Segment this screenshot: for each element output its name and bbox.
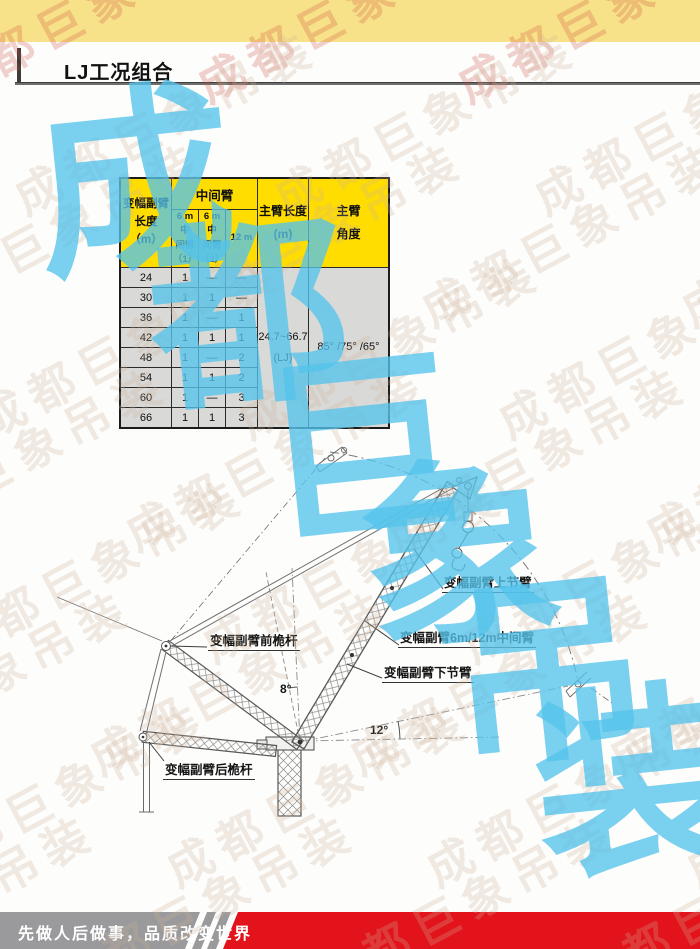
table-cell: 1 [172, 328, 199, 348]
table-body: 241——24.7~66.7 (LJ)85° /75° /65°3011—361… [120, 268, 389, 429]
label-mid-jib: 变幅副臂6m/12m中间臂 [398, 627, 536, 648]
label-rear-mast: 变幅副臂后桅杆 [163, 759, 255, 780]
watermark-tile: 成都巨象吊装 [153, 684, 481, 900]
table-cell: — [199, 308, 226, 328]
watermark-tile: 成都巨象吊装 [0, 684, 221, 900]
counterweight-ropes [139, 733, 154, 812]
table-row: 241——24.7~66.7 (LJ)85° /75° /65° [120, 268, 389, 288]
table-cell: 30 [120, 288, 172, 308]
tower-mast [257, 737, 314, 816]
label-angle-8: 8° [280, 682, 291, 696]
jib-joint-1 [350, 653, 354, 657]
table-cell: 1 [172, 268, 199, 288]
watermark-tile: 成都巨象吊装 [485, 236, 700, 452]
watermark-tile: 成都巨象吊装 [413, 684, 700, 900]
table-cell: 1 [172, 388, 199, 408]
front-mast-head [162, 642, 171, 651]
watermark-tile: 成都巨象吊装 [408, 124, 700, 340]
table-cell: 2 [226, 368, 258, 388]
table-cell: 24 [120, 268, 172, 288]
table-cell: 36 [120, 308, 172, 328]
table-cell: 42 [120, 328, 172, 348]
jib-tip-ghost-raised [168, 447, 347, 644]
title-accent-bar [17, 48, 21, 82]
table-cell: 1 [172, 368, 199, 388]
table-cell: — [199, 388, 226, 408]
table-cell: — [226, 288, 258, 308]
combination-table: 变幅副臂 长度 （m） 中间臂 主臂长度 (m) 主臂 角度 6 m 中 间臂 … [119, 177, 390, 429]
table-cell: 60 [120, 388, 172, 408]
watermark-tile-layer: 成都巨象吊装成都巨象吊装成都巨象吊装成都巨象吊装成都巨象吊装成都巨象吊装成都巨象… [0, 0, 700, 949]
top-yellow-band [0, 0, 700, 42]
table-cell: 1 [172, 408, 199, 429]
hoist-rope-and-hook [452, 490, 474, 570]
header-mid3: 12 m [226, 210, 258, 268]
jib-joint-2 [390, 586, 394, 590]
table-cell: 1 [199, 368, 226, 388]
title-rule [15, 82, 700, 85]
label-lower-jib: 变幅副臂下节臂 [382, 662, 474, 683]
label-upper-jib: 变幅副臂上节臂 [442, 572, 534, 593]
watermark-tile: 成都巨象吊装 [596, 572, 700, 788]
footer-bar: 先做人后做事，品质改变世界 [0, 912, 700, 949]
watermark-tile: 成都巨象吊装 [673, 684, 700, 900]
header-boom-length: 主臂长度 (m) [258, 178, 309, 268]
boom-angle-cell: 85° /75° /65° [309, 268, 390, 429]
table-cell: 1 [199, 328, 226, 348]
boom-length-cell: 24.7~66.7 (LJ) [258, 268, 309, 429]
table-cell: 3 [226, 388, 258, 408]
table-cell: 1 [172, 288, 199, 308]
table-cell: 1 [226, 308, 258, 328]
table-cell: 2 [226, 348, 258, 368]
table-cell: 54 [120, 368, 172, 388]
table-cell: 1 [172, 308, 199, 328]
page-title: LJ工况组合 [64, 56, 173, 85]
label-leaders [149, 549, 443, 761]
table-cell: 3 [226, 408, 258, 429]
table-cell: 1 [199, 288, 226, 308]
crane-diagram [0, 0, 700, 949]
angle-8-construction [266, 568, 300, 742]
watermark-brand-char: 装 [525, 675, 700, 893]
watermark-brand-layer: 成都巨象吊装 [0, 0, 700, 949]
footer-red-band [223, 912, 700, 949]
header-jib-length: 变幅副臂 长度 （m） [120, 178, 172, 268]
label-front-mast: 变幅副臂前桅杆 [208, 630, 300, 651]
table-cell: — [199, 268, 226, 288]
header-boom-angle: 主臂 角度 [309, 178, 390, 268]
angle-12-construction [305, 686, 568, 741]
table-cell: 1 [199, 408, 226, 429]
header-mid-group: 中间臂 [172, 178, 258, 210]
watermark-tile: 成都巨象吊装 [0, 572, 144, 788]
pendant-cables [57, 484, 453, 735]
header-mid1: 6 m 中 间臂 （1） [172, 210, 199, 268]
jib-pivot [298, 740, 303, 745]
watermark-tile: 成都巨象吊装 [632, 348, 700, 564]
table-cell: 1 [226, 328, 258, 348]
footer-slogan: 先做人后做事，品质改变世界 [18, 920, 252, 944]
table-cell: 48 [120, 348, 172, 368]
table-cell: 66 [120, 408, 172, 429]
header-mid2: 6 m 中 间臂 （2） [199, 210, 226, 268]
jib-tip-ghost-lowered [566, 672, 612, 703]
table-cell: — [226, 268, 258, 288]
watermark-tile: 成都巨象吊装 [372, 348, 700, 564]
document-page: 成都巨象吊装成都巨象吊装成都巨象吊装成都巨象吊装成都巨象吊装成都巨象吊装成都巨象… [0, 0, 700, 949]
rear-mast [142, 731, 276, 756]
label-angle-12: 12° [370, 723, 388, 737]
table-header: 变幅副臂 长度 （m） 中间臂 主臂长度 (m) 主臂 角度 6 m 中 间臂 … [120, 178, 389, 268]
table-cell: — [199, 348, 226, 368]
jib-head [452, 477, 477, 499]
table-cell: 1 [172, 348, 199, 368]
watermark-tile: 成都巨象吊装 [76, 572, 404, 788]
watermark-tile: 成都巨象吊装 [668, 124, 700, 340]
luffing-jib [292, 482, 459, 749]
watermark-tile: 成都巨象吊装 [521, 12, 700, 228]
